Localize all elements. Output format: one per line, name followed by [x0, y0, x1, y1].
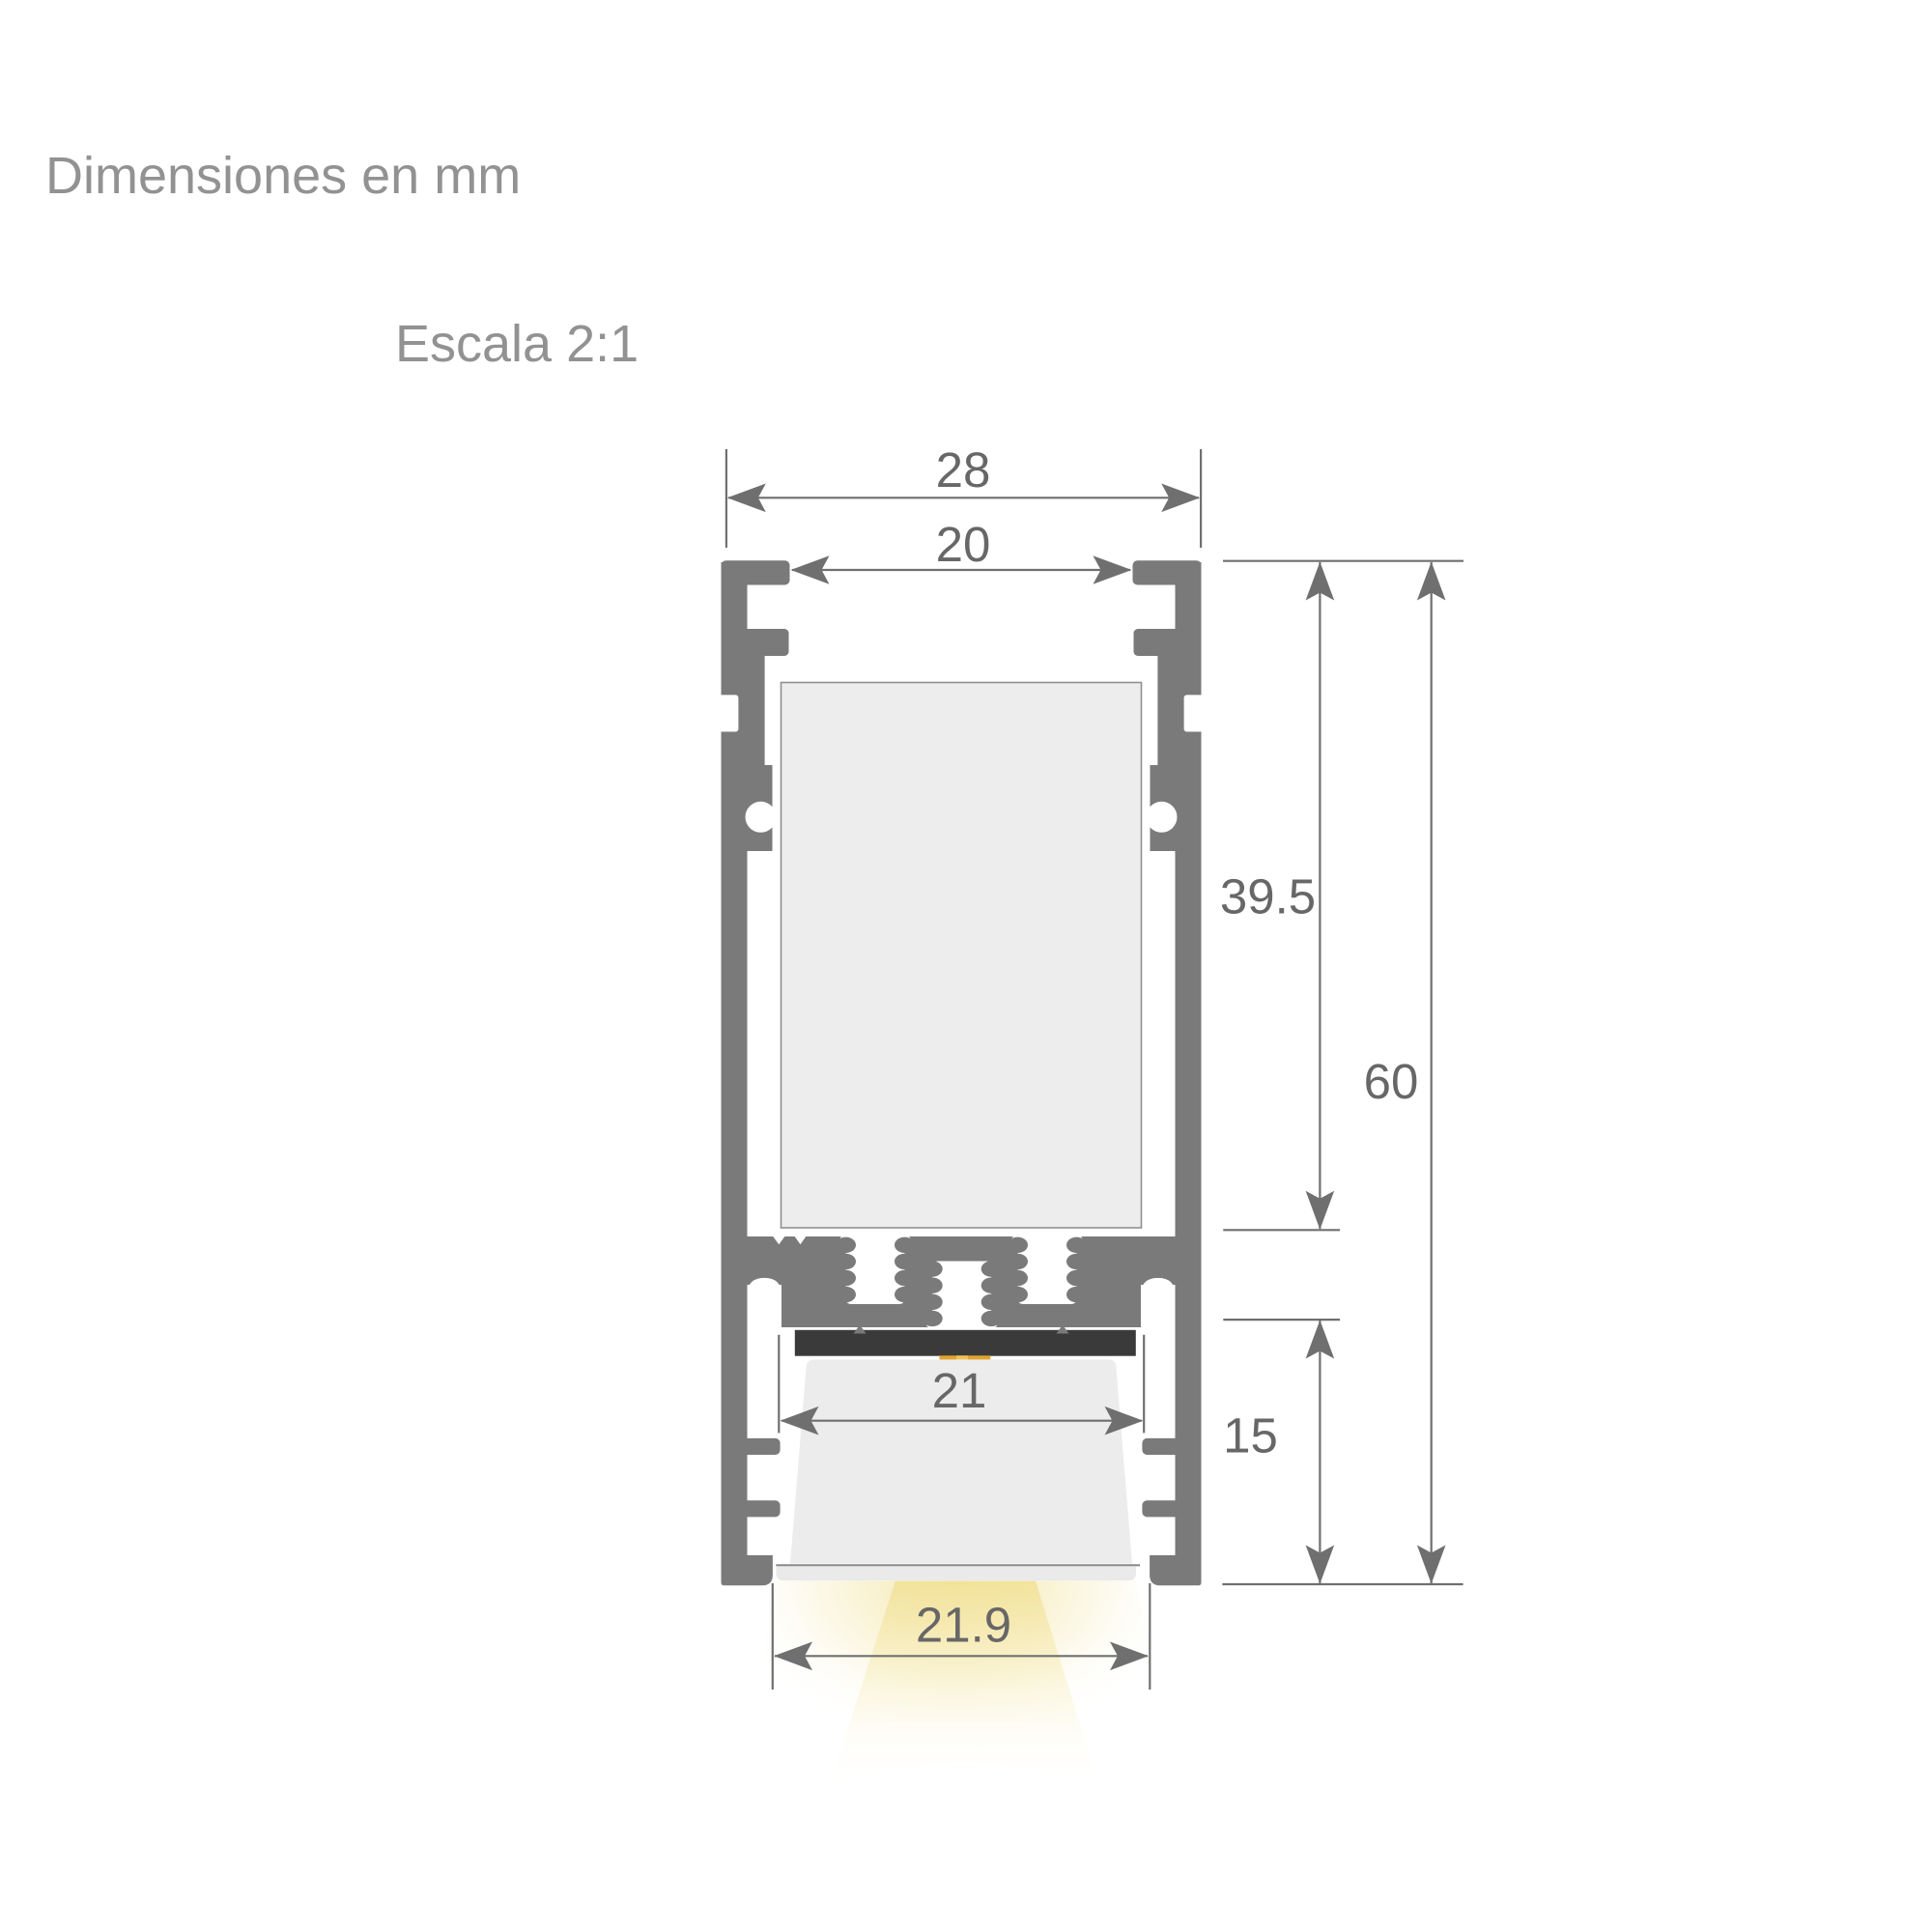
svg-text:39.5: 39.5 — [1220, 869, 1316, 924]
svg-text:21.9: 21.9 — [916, 1598, 1011, 1653]
svg-text:60: 60 — [1364, 1054, 1419, 1109]
svg-text:15: 15 — [1223, 1408, 1278, 1463]
svg-text:21: 21 — [932, 1363, 987, 1418]
svg-text:Dimensiones en mm: Dimensiones en mm — [45, 147, 521, 205]
svg-text:20: 20 — [936, 517, 991, 572]
svg-text:28: 28 — [936, 442, 991, 497]
svg-text:Escala 2:1: Escala 2:1 — [395, 315, 639, 373]
